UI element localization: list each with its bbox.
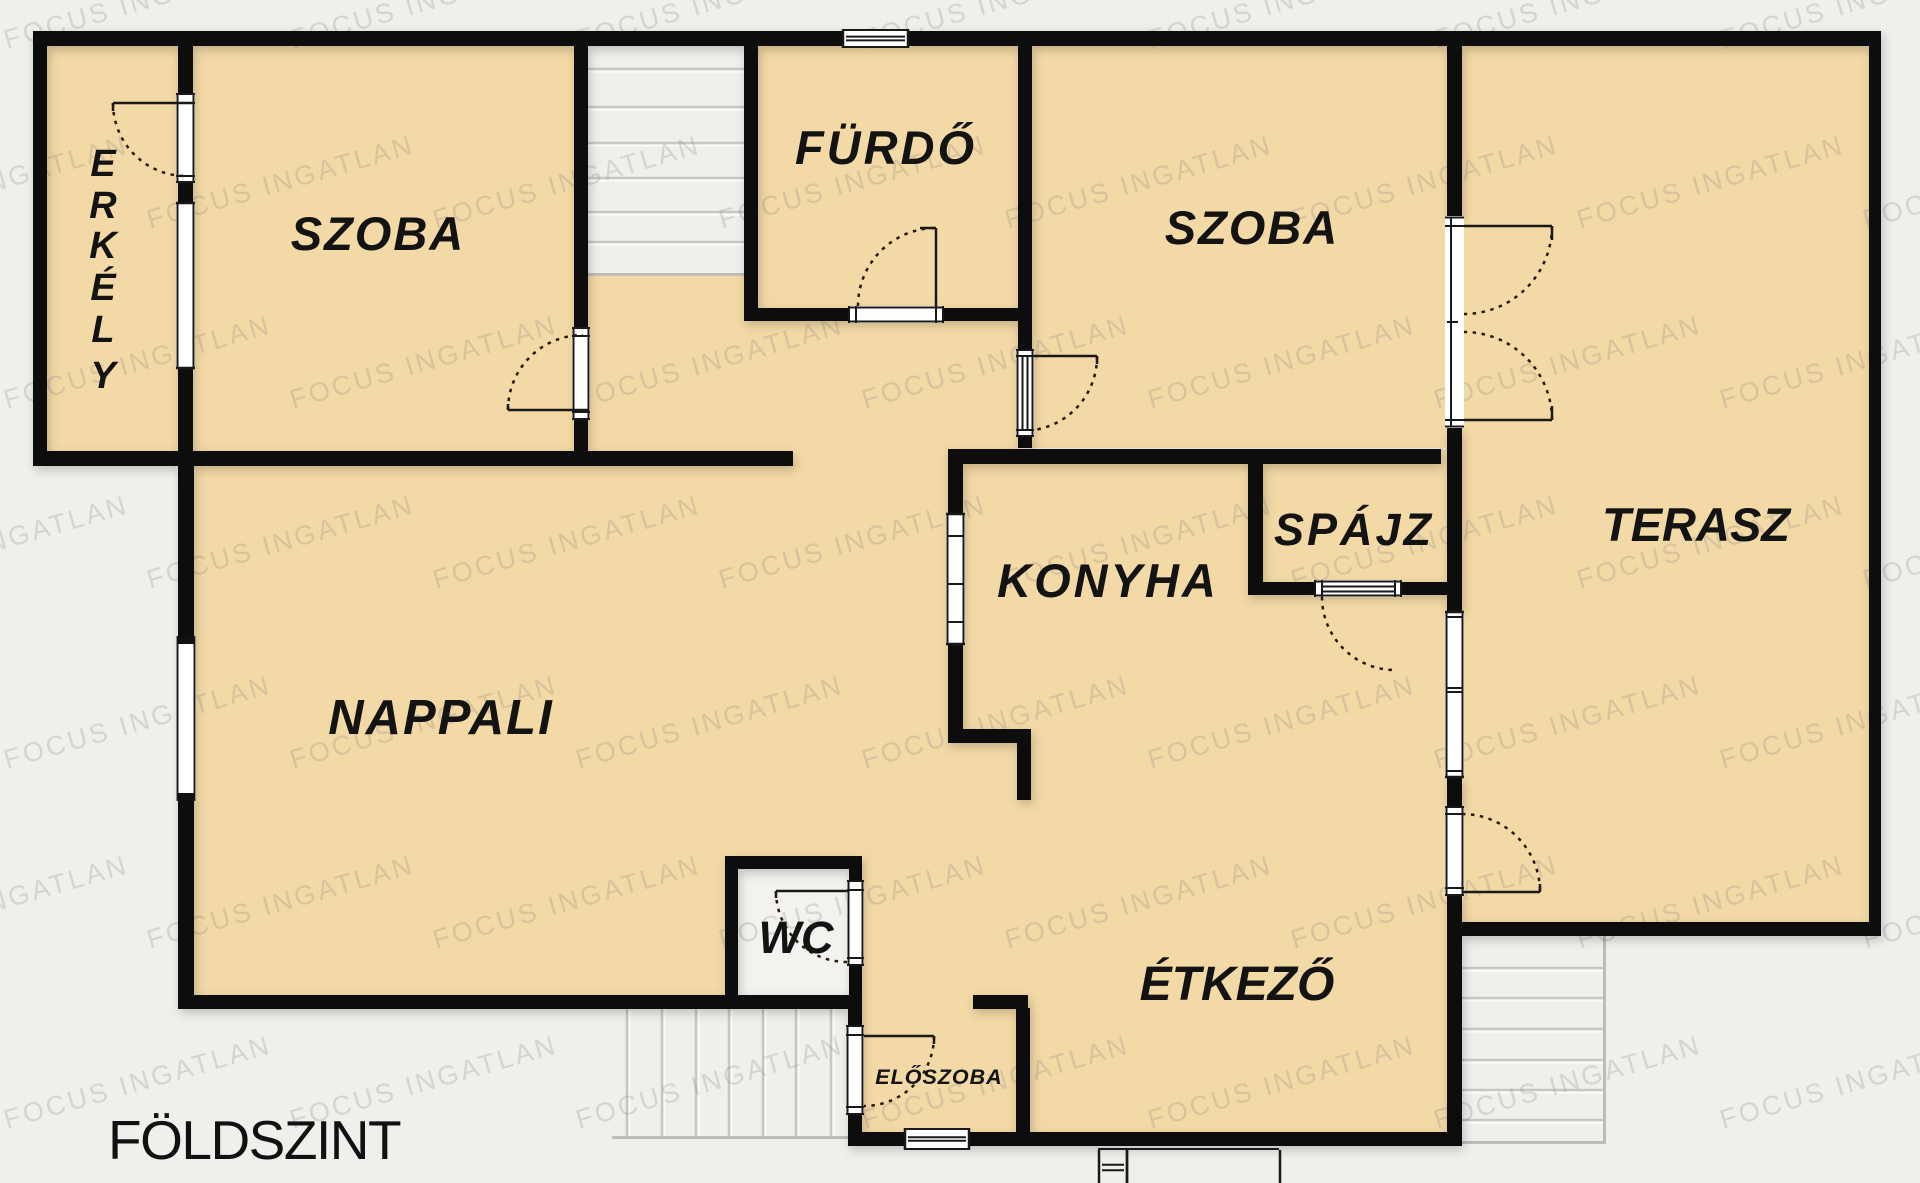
- svg-text:K: K: [89, 225, 119, 267]
- svg-text:SZOBA: SZOBA: [291, 207, 466, 260]
- svg-text:R: R: [89, 185, 117, 227]
- svg-text:Y: Y: [90, 355, 119, 397]
- svg-text:FÖLDSZINT: FÖLDSZINT: [108, 1109, 401, 1171]
- svg-text:FÜRDŐ: FÜRDŐ: [795, 121, 977, 174]
- svg-text:L: L: [91, 309, 114, 351]
- svg-text:ÉTKEZŐ: ÉTKEZŐ: [1140, 957, 1335, 1011]
- svg-text:E: E: [90, 143, 117, 185]
- svg-text:ELŐSZOBA: ELŐSZOBA: [875, 1064, 1002, 1089]
- svg-text:NAPPALI: NAPPALI: [328, 691, 553, 745]
- svg-text:SZOBA: SZOBA: [1165, 201, 1340, 254]
- svg-text:WC: WC: [759, 912, 835, 963]
- svg-text:TERASZ: TERASZ: [1602, 498, 1792, 551]
- svg-text:SPÁJZ: SPÁJZ: [1274, 504, 1434, 555]
- svg-text:KONYHA: KONYHA: [997, 554, 1219, 607]
- svg-text:É: É: [90, 265, 117, 309]
